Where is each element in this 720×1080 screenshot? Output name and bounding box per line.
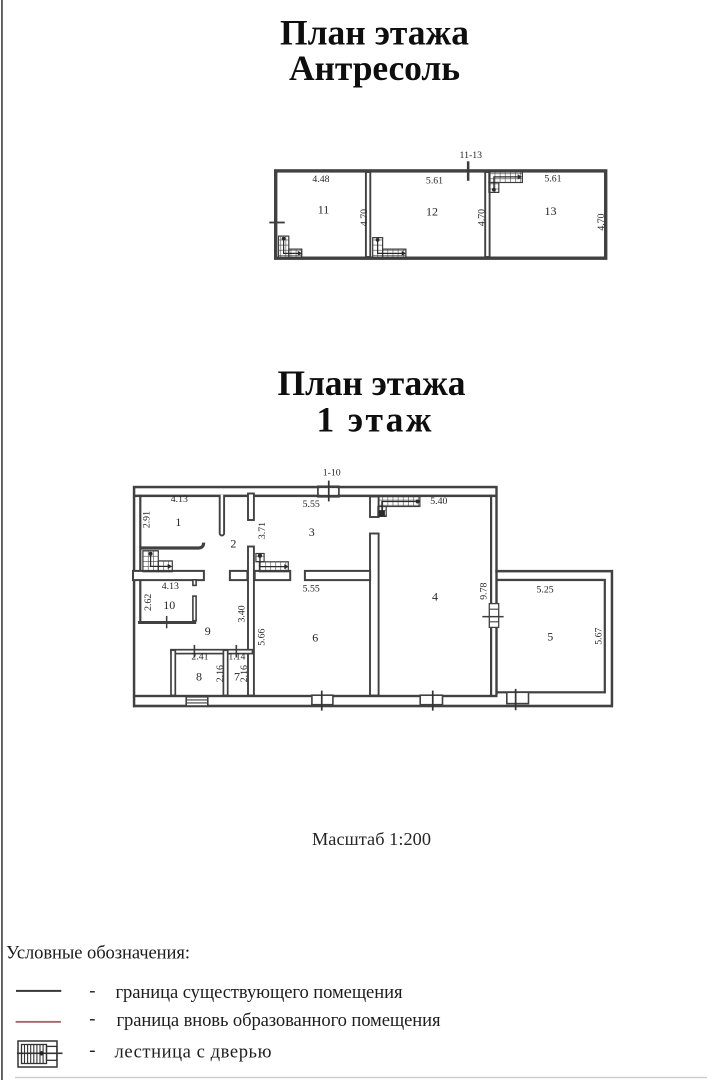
svg-text:13: 13 — [545, 204, 557, 218]
svg-text:граница существующего помещени: граница существующего помещения — [116, 982, 403, 1003]
svg-text:1.14: 1.14 — [228, 652, 245, 663]
svg-text:-: - — [89, 1040, 95, 1061]
svg-text:2.16: 2.16 — [239, 665, 250, 682]
svg-text:4.13: 4.13 — [162, 581, 179, 592]
svg-text:3: 3 — [309, 525, 315, 539]
svg-text:2: 2 — [230, 537, 236, 551]
svg-text:12: 12 — [426, 204, 438, 218]
svg-text:2.91: 2.91 — [142, 511, 153, 528]
svg-text:5.40: 5.40 — [430, 496, 447, 507]
svg-text:5.66: 5.66 — [257, 629, 268, 646]
svg-text:11: 11 — [318, 202, 330, 216]
svg-text:9: 9 — [205, 624, 211, 638]
svg-text:5.67: 5.67 — [593, 628, 604, 645]
svg-text:4: 4 — [432, 589, 438, 603]
svg-text:3.71: 3.71 — [257, 522, 268, 539]
svg-text:граница вновь образованного по: граница вновь образованного помещения — [117, 1010, 441, 1031]
svg-text:8: 8 — [196, 670, 202, 684]
svg-text:10: 10 — [163, 598, 175, 612]
svg-text:-: - — [89, 981, 95, 1002]
svg-text:4.70: 4.70 — [476, 209, 487, 226]
svg-text:1 этаж: 1 этаж — [317, 399, 432, 439]
svg-text:3.40: 3.40 — [237, 605, 248, 622]
svg-text:Масштаб 1:200: Масштаб 1:200 — [312, 829, 431, 849]
svg-text:1-10: 1-10 — [323, 468, 341, 479]
svg-text:5.61: 5.61 — [426, 175, 443, 186]
svg-text:1: 1 — [175, 515, 181, 529]
svg-text:Условные обозначения:: Условные обозначения: — [6, 943, 190, 964]
svg-text:11-13: 11-13 — [460, 150, 483, 161]
svg-text:2.41: 2.41 — [191, 652, 208, 663]
svg-text:4.70: 4.70 — [596, 213, 607, 230]
svg-text:4.13: 4.13 — [171, 494, 188, 505]
svg-text:План этажа: План этажа — [278, 363, 466, 403]
svg-text:-: - — [89, 1009, 95, 1030]
svg-text:5.55: 5.55 — [303, 583, 320, 594]
svg-text:5.55: 5.55 — [303, 499, 320, 510]
svg-text:2.62: 2.62 — [143, 594, 154, 611]
svg-text:4.48: 4.48 — [312, 174, 329, 185]
svg-text:Антресоль: Антресоль — [289, 48, 460, 88]
svg-text:2.16: 2.16 — [215, 665, 226, 682]
svg-text:План этажа: План этажа — [280, 12, 469, 52]
svg-text:5.25: 5.25 — [537, 584, 554, 595]
svg-text:5.61: 5.61 — [544, 174, 561, 185]
svg-text:лестница с дверью: лестница с дверью — [115, 1042, 272, 1063]
svg-text:6: 6 — [312, 630, 318, 644]
svg-text:9.78: 9.78 — [479, 583, 490, 600]
svg-text:4.70: 4.70 — [359, 209, 370, 226]
svg-text:5: 5 — [547, 630, 553, 644]
